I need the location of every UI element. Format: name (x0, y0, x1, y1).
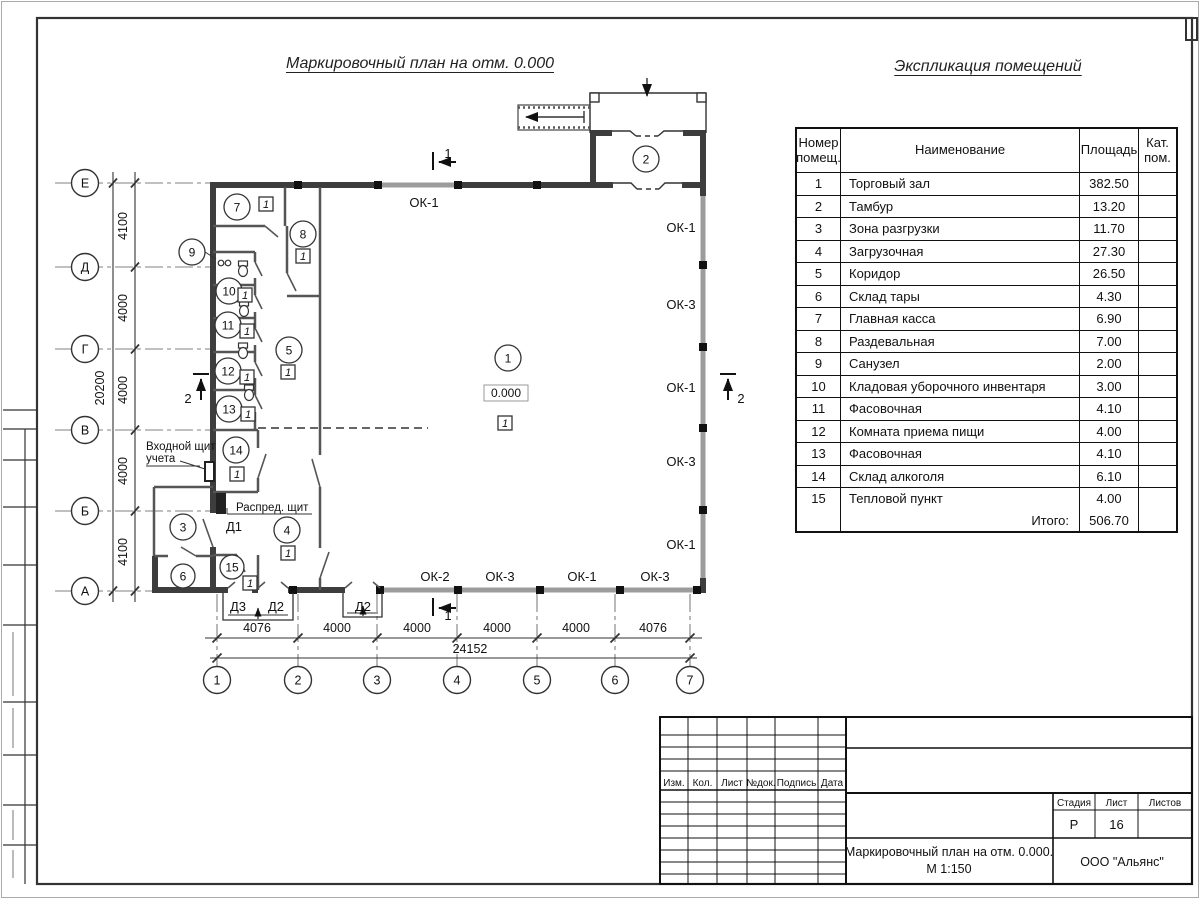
room-name: Главная касса (841, 308, 1080, 330)
table-row: 1Торговый зал382.50 (797, 173, 1176, 196)
dim-label: 4000 (562, 621, 590, 635)
tb-col-header: Дата (821, 778, 844, 789)
table-row: 13Фасовочная4.10 (797, 443, 1176, 466)
room-category (1139, 488, 1176, 510)
doc-title-line2: М 1:150 (926, 862, 971, 876)
room-area: 6.90 (1080, 308, 1139, 330)
tb-col-header: Кол. (693, 778, 713, 789)
axis-label: 6 (612, 674, 619, 688)
room-number: 11 (797, 398, 841, 420)
total-label: Итого: (841, 510, 1080, 532)
room-name: Зона разгрузки (841, 218, 1080, 240)
room-number: 5 (797, 263, 841, 285)
room-category (1139, 421, 1176, 443)
dim-label: 4076 (639, 621, 667, 635)
company-name: ООО "Альянс" (1080, 855, 1164, 869)
distribution-board (216, 493, 226, 514)
section-labels: 1 1 2 2 (184, 146, 744, 623)
drawing-sheet: 4100 4000 4000 4000 4100 20200 4076 4000… (0, 0, 1200, 900)
table-row: 2Тамбур13.20 (797, 196, 1176, 219)
room-numbers: 1 2 3 4 5 6 7 8 9 10 11 12 13 14 15 (170, 146, 659, 588)
table-row: 10Кладовая уборочного инвентаря3.00 (797, 376, 1176, 399)
floor-marker: 1 (247, 578, 253, 590)
floor-marker: 1 (244, 372, 250, 384)
door-label: Д3 (230, 599, 246, 614)
room-number-bubble: 1 (505, 352, 512, 366)
sheet-number: 16 (1109, 817, 1123, 832)
entry-board-label: учета (146, 453, 176, 465)
table-row: 7Главная касса6.90 (797, 308, 1176, 331)
dim-label: 4000 (116, 294, 130, 322)
entry-board-label: Входной щит (146, 441, 216, 453)
axis-label: Г (82, 343, 89, 357)
room-category (1139, 376, 1176, 398)
door-label: Д2 (268, 599, 284, 614)
room-name: Раздевальная (841, 331, 1080, 353)
room-number: 12 (797, 421, 841, 443)
floor-marker: 1 (263, 199, 269, 211)
room-number-bubble: 8 (300, 228, 307, 242)
axis-label: 3 (374, 674, 381, 688)
axis-label: Д (81, 261, 90, 275)
tb-col-header: Лист (721, 778, 743, 789)
window-label: ОК-3 (666, 454, 695, 469)
floor-marker: 1 (234, 469, 240, 481)
room-name: Кладовая уборочного инвентаря (841, 376, 1080, 398)
room-number-bubble: 13 (222, 403, 236, 417)
col-header-number: Номер помещ. (797, 129, 841, 172)
window-label: ОК-3 (666, 297, 695, 312)
room-area: 27.30 (1080, 241, 1139, 263)
floor-marker: 1 (285, 367, 291, 379)
dim-total-label: 24152 (453, 642, 488, 656)
axis-label: В (81, 424, 89, 438)
room-area: 4.10 (1080, 398, 1139, 420)
plan-title: Маркировочный план на отм. 0.000 (250, 55, 590, 73)
table-row: 14Склад алкоголя6.10 (797, 466, 1176, 489)
room-number: 13 (797, 443, 841, 465)
dim-label: 4100 (116, 212, 130, 240)
room-area: 6.10 (1080, 466, 1139, 488)
room-number-bubble: 4 (284, 524, 291, 538)
table-row: 9Санузел2.00 (797, 353, 1176, 376)
room-name: Загрузочная (841, 241, 1080, 263)
room-number-bubble: 11 (222, 319, 235, 333)
table-row: 8Раздевальная7.00 (797, 331, 1176, 354)
dim-label: 4100 (116, 538, 130, 566)
room-number: 2 (797, 196, 841, 218)
axis-label: 4 (454, 674, 461, 688)
window-label: ОК-1 (409, 195, 438, 210)
dim-label: 4000 (116, 457, 130, 485)
room-number: 15 (797, 488, 841, 510)
dim-label: 4000 (116, 376, 130, 404)
tb-col-header: №док. (746, 778, 775, 789)
room-area: 4.00 (1080, 421, 1139, 443)
room-category (1139, 331, 1176, 353)
elevation-value: 0.000 (491, 386, 521, 400)
axis-label: 1 (214, 674, 221, 688)
table-row: 12Комната приема пищи4.00 (797, 421, 1176, 444)
total-category (1139, 510, 1176, 532)
room-area: 4.30 (1080, 286, 1139, 308)
room-number: 10 (797, 376, 841, 398)
window-labels: ОК-1 ОК-1 ОК-3 ОК-1 ОК-3 ОК-1 ОК-2 ОК-3 … (409, 195, 695, 584)
section-label: 2 (184, 391, 191, 406)
grid-axes (55, 183, 690, 666)
window-label: ОК-1 (666, 380, 695, 395)
stage-header: Стадия (1057, 798, 1091, 809)
total-empty-cell (797, 510, 841, 532)
room-number-bubble: 6 (180, 570, 187, 584)
floor-marker: 1 (502, 418, 508, 430)
axis-bubbles: Е Д Г В Б А 1 2 3 4 5 6 7 (72, 170, 704, 694)
walls-windows (378, 185, 703, 590)
dim-label: 4076 (243, 621, 271, 635)
room-category (1139, 353, 1176, 375)
room-number: 6 (797, 286, 841, 308)
col-header-category: Кат. пом. (1139, 129, 1176, 172)
room-area: 26.50 (1080, 263, 1139, 285)
room-category (1139, 308, 1176, 330)
room-number: 1 (797, 173, 841, 195)
col-header-area: Площадь (1080, 129, 1139, 172)
tambour-canopy (518, 78, 706, 133)
section-label: 1 (444, 146, 451, 161)
entry-meter-board (205, 462, 214, 481)
room-number-bubble: 3 (180, 521, 187, 535)
room-category (1139, 196, 1176, 218)
room-number: 9 (797, 353, 841, 375)
room-number: 7 (797, 308, 841, 330)
room-number-bubble: 9 (189, 246, 196, 260)
table-row: 15Тепловой пункт4.00 (797, 488, 1176, 510)
table-row: 6Склад тары4.30 (797, 286, 1176, 309)
room-name: Торговый зал (841, 173, 1080, 195)
floor-marker: 1 (245, 409, 251, 421)
room-area: 4.10 (1080, 443, 1139, 465)
room-area: 11.70 (1080, 218, 1139, 240)
room-category (1139, 466, 1176, 488)
room-category (1139, 443, 1176, 465)
table-row: 4Загрузочная27.30 (797, 241, 1176, 264)
room-area: 3.00 (1080, 376, 1139, 398)
axis-label: 2 (295, 674, 302, 688)
room-category (1139, 286, 1176, 308)
room-name: Санузел (841, 353, 1080, 375)
room-name: Фасовочная (841, 443, 1080, 465)
room-name: Комната приема пищи (841, 421, 1080, 443)
window-label: ОК-3 (640, 569, 669, 584)
dim-label: 4000 (323, 621, 351, 635)
room-category (1139, 218, 1176, 240)
section-label: 2 (737, 391, 744, 406)
room-number-bubble: 7 (234, 201, 241, 215)
tb-col-header: Изм. (663, 778, 684, 789)
side-stamp (3, 410, 37, 884)
room-number-bubble: 15 (225, 561, 239, 575)
floor-markers: 1 1 1 1 1 1 1 1 1 1 1 (230, 197, 512, 590)
dim-label: 4000 (403, 621, 431, 635)
room-table-rows: 1Торговый зал382.502Тамбур13.203Зона раз… (797, 173, 1176, 510)
table-title: Экспликация помещений (823, 58, 1153, 76)
floor-marker: 1 (242, 290, 248, 302)
table-row: 11Фасовочная4.10 (797, 398, 1176, 421)
axis-label: А (81, 585, 90, 599)
room-number-bubble: 12 (221, 365, 235, 379)
room-category (1139, 241, 1176, 263)
axis-label: 7 (687, 674, 694, 688)
table-header-row: Номер помещ. Наименование Площадь Кат. п… (797, 129, 1176, 173)
col-header-name: Наименование (841, 129, 1080, 172)
room-name: Склад тары (841, 286, 1080, 308)
room-area: 4.00 (1080, 488, 1139, 510)
table-row: 5Коридор26.50 (797, 263, 1176, 286)
room-name: Коридор (841, 263, 1080, 285)
room-schedule-table: Номер помещ. Наименование Площадь Кат. п… (795, 127, 1178, 533)
axis-label: 5 (534, 674, 541, 688)
window-label: ОК-1 (567, 569, 596, 584)
window-label: ОК-2 (420, 569, 449, 584)
col-header-number-line1: Номер (798, 136, 838, 150)
floor-marker: 1 (300, 251, 306, 263)
stage-value: Р (1070, 817, 1079, 832)
room-number-bubble: 10 (222, 285, 236, 299)
window-label: ОК-1 (666, 220, 695, 235)
faucet-icon (225, 260, 231, 266)
axis-label: Б (81, 505, 89, 519)
col-header-number-line2: помещ. (797, 151, 841, 165)
room-number-bubble: 2 (643, 153, 650, 167)
door-label: Д1 (226, 519, 242, 534)
room-area: 2.00 (1080, 353, 1139, 375)
room-name: Тамбур (841, 196, 1080, 218)
room-name: Склад алкоголя (841, 466, 1080, 488)
section-markers (193, 152, 736, 616)
elevation-mark: 0.000 (484, 385, 528, 401)
floor-marker: 1 (285, 548, 291, 560)
distribution-board-label: Распред. щит (236, 502, 309, 514)
dim-total-label: 20200 (93, 371, 107, 406)
room-number: 14 (797, 466, 841, 488)
table-row: 3Зона разгрузки11.70 (797, 218, 1176, 241)
section-label: 1 (444, 608, 451, 623)
room-category (1139, 263, 1176, 285)
total-area: 506.70 (1080, 510, 1139, 532)
doc-title-line1: Маркировочный план на отм. 0.000. (845, 845, 1053, 859)
dim-label: 4000 (483, 621, 511, 635)
col-header-category-line1: Кат. (1146, 136, 1169, 150)
room-number: 8 (797, 331, 841, 353)
sheets-header: Листов (1149, 798, 1182, 809)
window-label: ОК-3 (485, 569, 514, 584)
room-area: 382.50 (1080, 173, 1139, 195)
room-name: Фасовочная (841, 398, 1080, 420)
room-number-bubble: 5 (286, 344, 293, 358)
sheet-header: Лист (1106, 798, 1128, 809)
room-area: 13.20 (1080, 196, 1139, 218)
room-number: 4 (797, 241, 841, 263)
floor-marker: 1 (244, 326, 250, 338)
col-header-category-line2: пом. (1144, 151, 1171, 165)
room-area: 7.00 (1080, 331, 1139, 353)
room-category (1139, 173, 1176, 195)
tb-col-header: Подпись (777, 778, 817, 789)
window-label: ОК-1 (666, 537, 695, 552)
door-label: Д2 (355, 599, 371, 614)
room-category (1139, 398, 1176, 420)
room-number: 3 (797, 218, 841, 240)
table-total-row: Итого: 506.70 (797, 510, 1176, 532)
axis-label: Е (81, 177, 89, 191)
faucet-icon (218, 260, 224, 266)
room-name: Тепловой пункт (841, 488, 1080, 510)
room-number-bubble: 14 (229, 444, 243, 458)
